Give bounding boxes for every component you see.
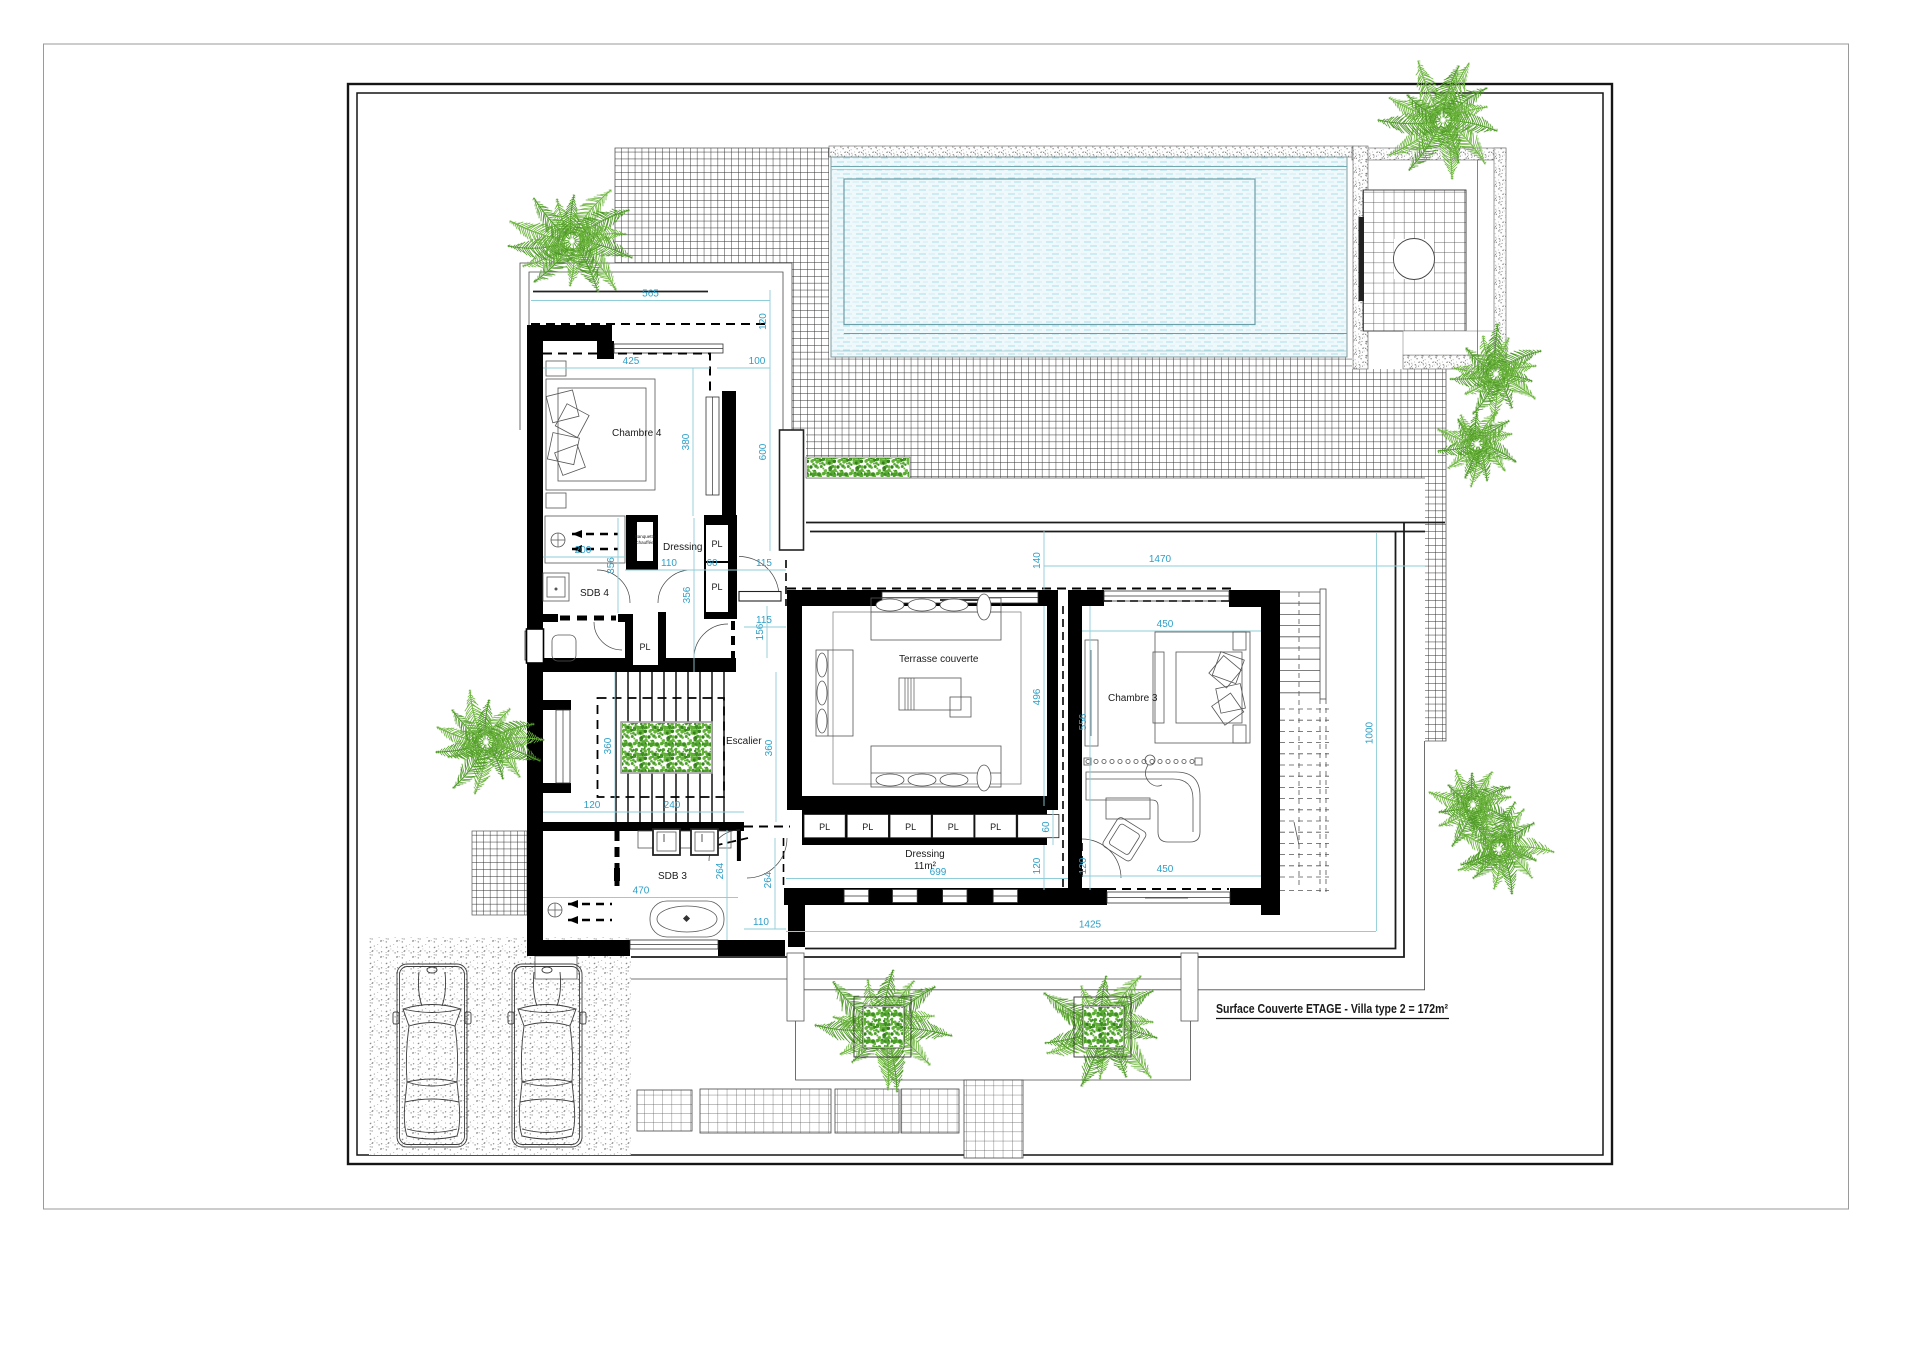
svg-text:1425: 1425 (1079, 920, 1102, 931)
svg-text:356: 356 (682, 586, 693, 603)
svg-text:115: 115 (756, 558, 772, 569)
svg-text:120: 120 (1032, 857, 1043, 874)
svg-text:SDB 3: SDB 3 (658, 871, 687, 882)
svg-text:115: 115 (756, 615, 772, 626)
svg-text:380: 380 (681, 433, 692, 450)
svg-text:360: 360 (764, 739, 775, 756)
svg-text:264: 264 (715, 862, 726, 879)
svg-text:Surface Couverte ETAGE - Villa: Surface Couverte ETAGE - Villa type 2 = … (1216, 1001, 1449, 1016)
svg-text:PL: PL (711, 539, 722, 549)
svg-text:PL: PL (948, 822, 959, 832)
svg-text:SDB 4: SDB 4 (580, 588, 609, 599)
svg-text:556: 556 (1078, 713, 1089, 730)
svg-text:PL: PL (819, 822, 830, 832)
svg-text:264: 264 (763, 871, 774, 888)
svg-text:60: 60 (1041, 821, 1052, 833)
svg-text:565: 565 (642, 289, 659, 300)
svg-text:Chambre 3: Chambre 3 (1108, 693, 1158, 704)
svg-text:100: 100 (749, 356, 766, 367)
svg-text:1000: 1000 (1365, 721, 1376, 744)
svg-text:11m²: 11m² (914, 861, 937, 872)
svg-text:120: 120 (758, 313, 769, 330)
svg-text:1470: 1470 (1149, 554, 1172, 565)
svg-text:PL: PL (639, 642, 650, 652)
svg-text:496: 496 (1032, 688, 1043, 705)
svg-text:Chambre 4: Chambre 4 (612, 428, 662, 439)
svg-text:240: 240 (664, 800, 681, 811)
svg-text:140: 140 (1032, 552, 1043, 569)
svg-text:120: 120 (1078, 857, 1089, 874)
svg-text:chauffée: chauffée (636, 540, 654, 545)
svg-text:Dressing: Dressing (905, 849, 944, 860)
svg-text:360: 360 (603, 737, 614, 754)
svg-text:PL: PL (862, 822, 873, 832)
svg-text:PL: PL (711, 582, 722, 592)
svg-text:PL: PL (905, 822, 916, 832)
svg-text:Banquette: Banquette (635, 534, 656, 539)
svg-text:Dressing: Dressing (663, 542, 702, 553)
svg-text:Escalier: Escalier (726, 736, 762, 747)
svg-text:PL: PL (990, 822, 1001, 832)
svg-text:200: 200 (575, 545, 592, 556)
svg-text:60: 60 (706, 558, 718, 569)
svg-text:450: 450 (1157, 619, 1174, 630)
svg-text:356: 356 (606, 557, 617, 574)
svg-text:425: 425 (623, 356, 640, 367)
svg-text:110: 110 (753, 917, 769, 928)
svg-text:110: 110 (661, 558, 677, 569)
svg-text:450: 450 (1157, 864, 1174, 875)
svg-text:120: 120 (584, 800, 601, 811)
svg-text:470: 470 (633, 886, 650, 897)
svg-text:600: 600 (758, 443, 769, 460)
svg-text:Terrasse couverte: Terrasse couverte (899, 654, 979, 665)
